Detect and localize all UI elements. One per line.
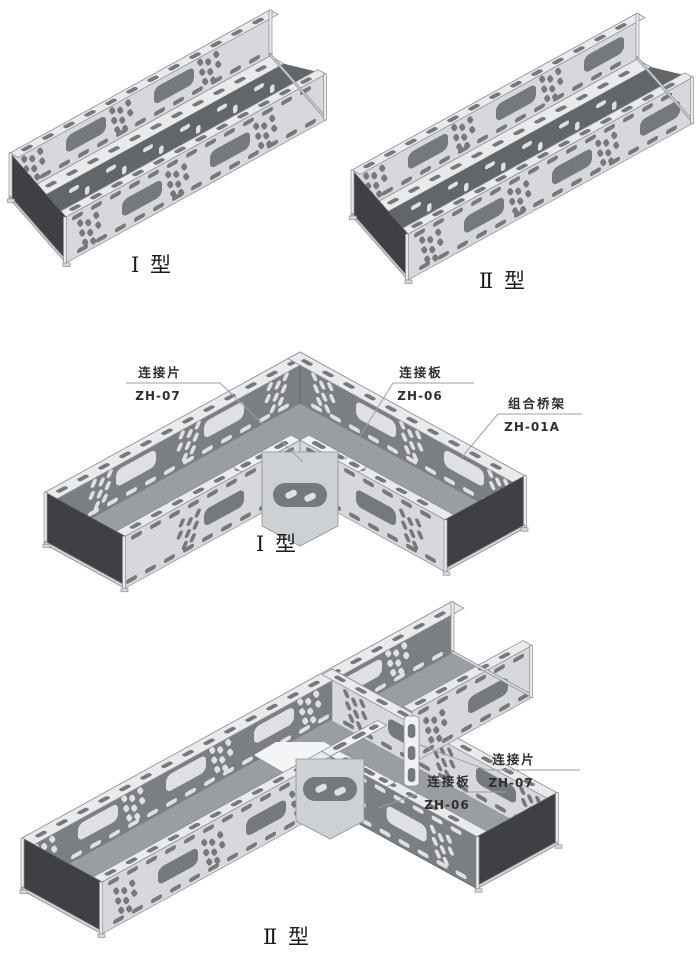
callout-code: ZH-07 xyxy=(488,776,533,790)
straight-type2-label: Ⅱ 型 xyxy=(479,269,527,293)
cable-tray-catalog-page: 连接片 ZH-07 连接板 ZH-06 组合桥架 ZH-01A 连接片 ZH-0… xyxy=(0,0,700,960)
tee-type2-label: Ⅱ 型 xyxy=(263,925,311,949)
callout-code: ZH-06 xyxy=(397,389,442,403)
straight-tray-type1-illustration xyxy=(8,10,327,267)
callout-code: ZH-01A xyxy=(504,420,560,434)
elbow-type1-label: Ⅰ 型 xyxy=(256,532,298,556)
callout-title: 连接板 xyxy=(427,774,471,789)
callout-code: ZH-07 xyxy=(135,389,180,403)
tee-assembly-type2-illustration xyxy=(20,602,562,938)
straight-type1-label: Ⅰ 型 xyxy=(131,253,173,277)
straight-tray-type2-illustration xyxy=(350,13,694,283)
callout-combined-tray-elbow: 组合桥架 ZH-01A xyxy=(462,396,582,457)
callout-code: ZH-06 xyxy=(424,798,469,812)
product-diagram-canvas: 连接片 ZH-07 连接板 ZH-06 组合桥架 ZH-01A 连接片 ZH-0… xyxy=(0,0,700,960)
callout-title: 连接板 xyxy=(399,365,443,380)
callout-title: 连接片 xyxy=(138,365,182,380)
callout-title: 组合桥架 xyxy=(508,396,566,411)
callout-title: 连接片 xyxy=(492,752,536,767)
